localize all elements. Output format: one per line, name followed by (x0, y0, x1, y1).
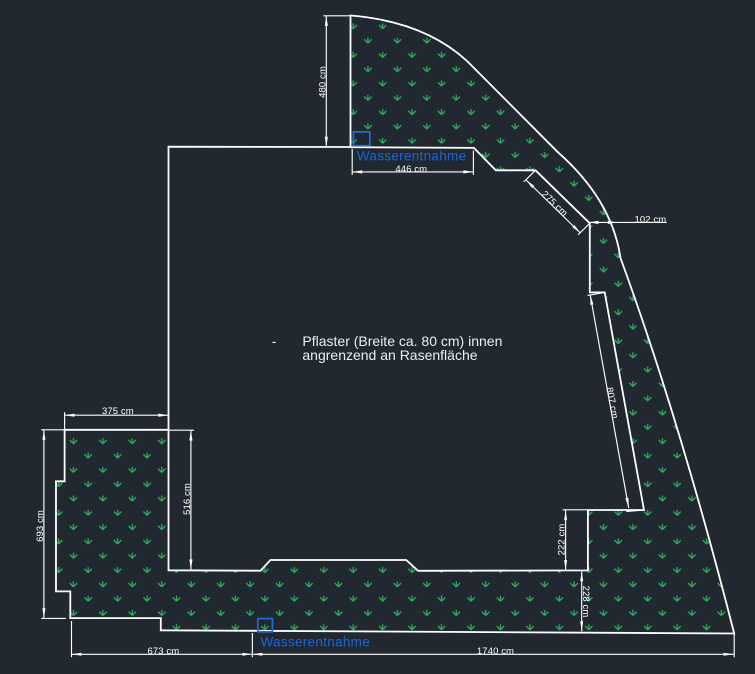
svg-text:480 cm: 480 cm (317, 66, 328, 98)
svg-text:Wasserentnahme: Wasserentnahme (357, 148, 467, 163)
svg-text:673 cm: 673 cm (148, 646, 180, 657)
svg-text:693 cm: 693 cm (35, 510, 46, 542)
svg-text:228 cm: 228 cm (580, 586, 591, 618)
svg-text:-: - (272, 333, 277, 349)
svg-text:angrenzend an Rasenfläche: angrenzend an Rasenfläche (302, 347, 477, 363)
svg-text:102 cm: 102 cm (635, 215, 667, 226)
svg-text:516 cm: 516 cm (182, 483, 193, 515)
svg-text:1740 cm: 1740 cm (477, 646, 514, 657)
svg-text:375 cm: 375 cm (102, 406, 134, 417)
svg-text:446 cm: 446 cm (395, 164, 427, 175)
svg-text:222 cm: 222 cm (557, 524, 568, 556)
svg-text:Wasserentnahme: Wasserentnahme (261, 635, 371, 650)
